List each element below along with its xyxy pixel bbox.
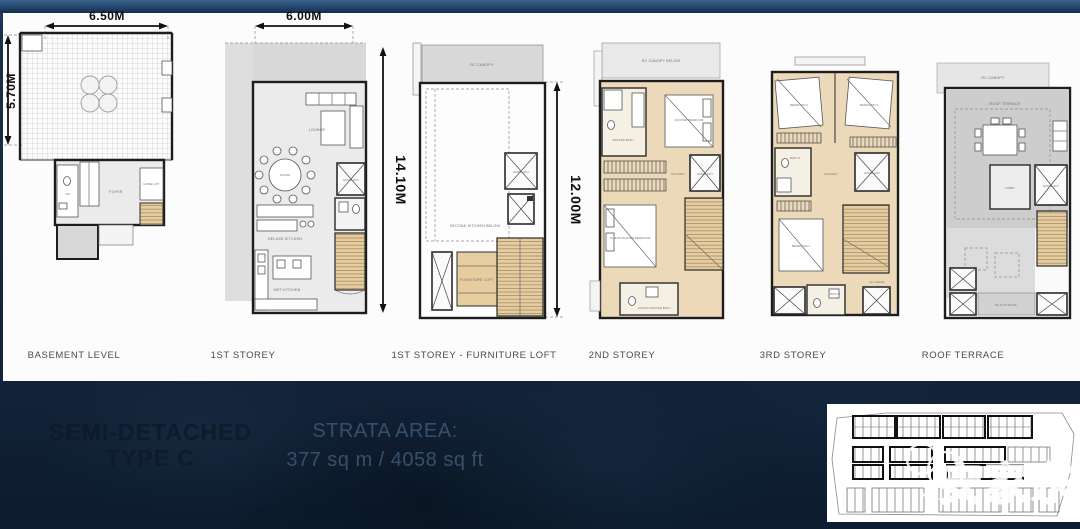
- rc-canopy-below-label: RC CANOPY BELOW: [642, 59, 681, 63]
- master-bath: MASTER BATH: [602, 88, 646, 156]
- plan-label-3rd: 3RD STOREY: [760, 350, 827, 361]
- plan-label-loft: 1ST STOREY - FURNITURE LOFT: [391, 350, 556, 361]
- dim-height-label: 5.70M: [4, 73, 18, 109]
- second-kitchen-label: SECOND KITCHEN BELOW: [450, 224, 501, 228]
- plan-3rd-storey: BEDROOM 2 BEDROOM 3 BATH 2 HALLWAY HOME …: [755, 13, 920, 368]
- hallway-label: HALLWAY: [671, 172, 685, 176]
- foyer-label: FOYER: [109, 190, 123, 194]
- home-lift: HOME LIFT: [505, 153, 537, 189]
- planter-ledge: [590, 281, 600, 311]
- store-room: [57, 225, 98, 259]
- strata-label: STRATA AREA:: [255, 417, 515, 446]
- strata-area: STRATA AREA: 377 sq m / 4058 sq ft: [255, 417, 515, 475]
- home-lift: HOME LIFT: [855, 153, 889, 191]
- plan-2nd-storey: RC CANOPY BELOW MASTER BATH MASTER BEDRO…: [590, 13, 760, 368]
- dining-label: DINING: [280, 173, 291, 177]
- bedroom-2: BEDROOM 2: [775, 77, 823, 129]
- master-bedroom: MASTER BEDROOM: [665, 95, 713, 147]
- bedroom3-label: BEDROOM 3: [860, 103, 878, 107]
- home-lift: HOME LIFT: [690, 155, 720, 191]
- plan-1st-storey: 6.00M 14.10M LOUNGE: [205, 13, 405, 368]
- junior-master-bedroom-label: JUNIOR MASTER BEDROOM: [610, 236, 651, 240]
- rc-canopy-label: RC CANOPY: [470, 63, 494, 67]
- furniture-loft-label: FURNITURE LOFT: [460, 278, 494, 282]
- plan-furniture-loft: 12.00M RC CANOPY HOME LIFT SECOND KITCHE…: [405, 13, 590, 368]
- master-bath-label: MASTER BATH: [612, 138, 633, 142]
- dim-height: 12.00M: [545, 82, 584, 317]
- strata-value: 377 sq m / 4058 sq ft: [255, 446, 515, 475]
- basement-rooms: WC FOYER HOME LIFT: [55, 160, 164, 259]
- dim-width: 6.00M: [255, 9, 353, 43]
- front-porch: [253, 43, 366, 82]
- wd-shaft: [508, 194, 534, 224]
- bath-2: BATH 2: [775, 148, 811, 196]
- void-shaft: [432, 252, 452, 310]
- stairs: [685, 198, 723, 270]
- unit-type-line1: SEMI-DETACHED: [38, 419, 263, 445]
- plan-label-basement: BASEMENT LEVEL: [28, 350, 121, 361]
- slide: 6.50M 5.70M: [0, 0, 1080, 529]
- bedroom2-label: BEDROOM 2: [790, 103, 808, 107]
- home-lift-label: HOME LIFT: [864, 171, 880, 175]
- plan-basement: 6.50M 5.70M: [2, 13, 202, 368]
- junior-master-bath-label: JUNIOR MASTER BATH: [637, 306, 670, 310]
- basement-terrace: [20, 33, 172, 160]
- bedroom4-label: BEDROOM 4: [792, 244, 810, 248]
- dim-width-label: 6.00M: [286, 9, 322, 23]
- home-lift: HOME LIFT: [140, 168, 163, 200]
- bath: [335, 198, 365, 230]
- lobby: LOBBY: [990, 165, 1030, 209]
- stairs: [335, 233, 365, 294]
- plan-label-2nd: 2ND STOREY: [589, 350, 656, 361]
- stairs: [843, 205, 889, 273]
- dim-width-label: 6.50M: [89, 9, 125, 23]
- louvre-strip: [795, 57, 865, 65]
- plan-label-roof: ROOF TERRACE: [922, 350, 1005, 361]
- bath2-label: BATH 2: [790, 156, 801, 160]
- terrace-label: ROOF TERRACE: [990, 102, 1021, 106]
- top-strip: [0, 0, 1080, 13]
- furniture-loft: FURNITURE LOFT: [457, 252, 497, 306]
- home-lift-label: HOME LIFT: [697, 172, 713, 176]
- wc-room: WC: [57, 165, 78, 217]
- plan-roof-terrace: RC CANOPY ROOF TERRACE LOBBY HOME LIFT: [925, 13, 1080, 368]
- unit-type-title: SEMI-DETACHED TYPE C: [38, 419, 263, 471]
- master-bedroom-label: MASTER BEDROOM: [675, 118, 704, 122]
- rc-flat-roof-label: RC FLAT ROOF: [995, 303, 1017, 307]
- plan-label-1st: 1ST STOREY: [211, 350, 276, 361]
- junior-master-bedroom: JUNIOR MASTER BEDROOM: [604, 205, 656, 267]
- bath-3: BATH 3: [807, 285, 845, 315]
- shoe-cabinet: [80, 162, 99, 206]
- stairs: [497, 238, 543, 316]
- stairs: [1037, 211, 1067, 266]
- entry-step: [99, 225, 133, 245]
- home-lift-label: HOME LIFT: [513, 170, 529, 174]
- bedroom-4: BEDROOM 4: [779, 219, 823, 271]
- bath3-label: BATH 3: [830, 292, 841, 296]
- home-lift: HOME LIFT: [337, 163, 365, 195]
- wc-label: WC: [66, 192, 72, 196]
- bedroom-3: BEDROOM 3: [845, 77, 893, 129]
- ac-ledge-label: AC LEDGE: [869, 280, 884, 284]
- home-lift-label: HOME LIFT: [1043, 184, 1059, 188]
- junior-master-bath: JUNIOR MASTER BATH: [620, 283, 678, 315]
- watermark-text: 安家东明: [938, 448, 1080, 512]
- hallway-label: HALLWAY: [824, 172, 838, 176]
- home-lift-label: HOME LIFT: [143, 182, 159, 186]
- lounge-label: LOUNGE: [309, 128, 326, 132]
- home-lift: HOME LIFT: [1035, 165, 1067, 205]
- lobby-label: LOBBY: [1005, 186, 1015, 190]
- dim-height-label: 12.00M: [568, 175, 584, 225]
- unit-type-line2: TYPE C: [38, 445, 263, 471]
- home-lift-label: HOME LIFT: [343, 178, 359, 182]
- rc-canopy-label: RC CANOPY: [981, 76, 1005, 80]
- deluxe-kitchen-label: DELUXE KITCHEN: [268, 237, 302, 241]
- wet-kitchen-label: WET KITCHEN: [274, 288, 301, 292]
- side-setback: [225, 43, 253, 301]
